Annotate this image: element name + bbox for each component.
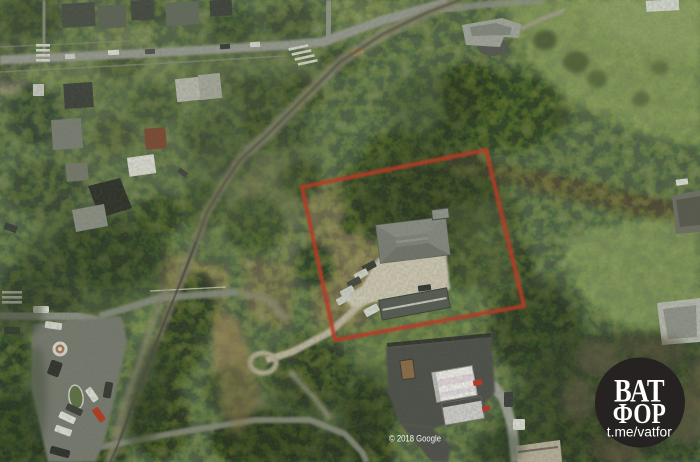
- svg-text:© 2018 Google: © 2018 Google: [389, 434, 441, 445]
- svg-text:t.me/vatfor: t.me/vatfor: [607, 424, 673, 439]
